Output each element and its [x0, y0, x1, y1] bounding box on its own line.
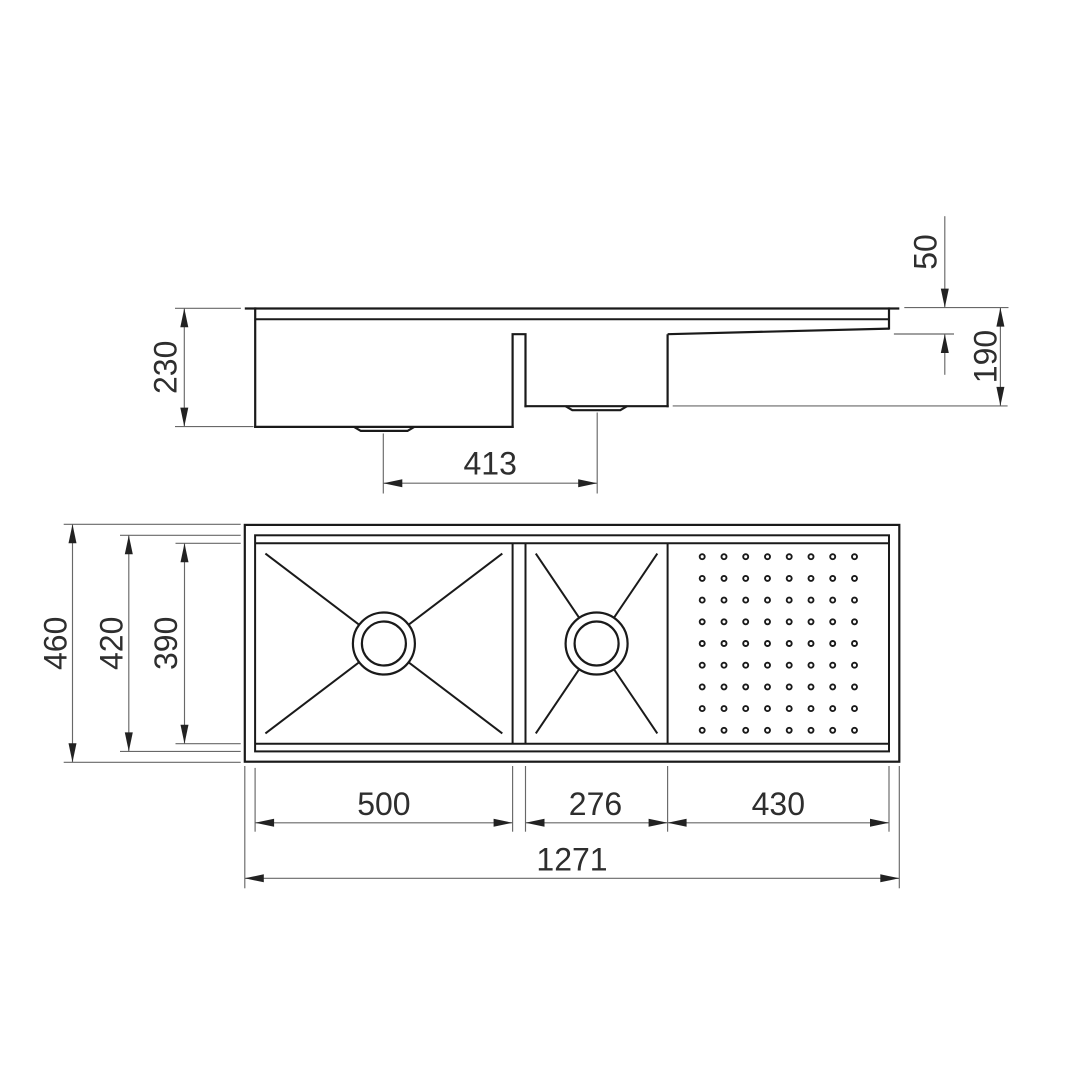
svg-text:460: 460 — [38, 617, 74, 670]
svg-text:390: 390 — [148, 617, 184, 670]
svg-text:420: 420 — [94, 617, 130, 670]
svg-text:1271: 1271 — [536, 841, 607, 877]
svg-text:500: 500 — [357, 786, 410, 822]
svg-text:190: 190 — [968, 330, 1004, 383]
svg-text:230: 230 — [148, 341, 184, 394]
svg-text:276: 276 — [569, 786, 622, 822]
svg-text:430: 430 — [752, 786, 805, 822]
svg-text:50: 50 — [908, 234, 944, 270]
svg-text:413: 413 — [464, 446, 517, 482]
